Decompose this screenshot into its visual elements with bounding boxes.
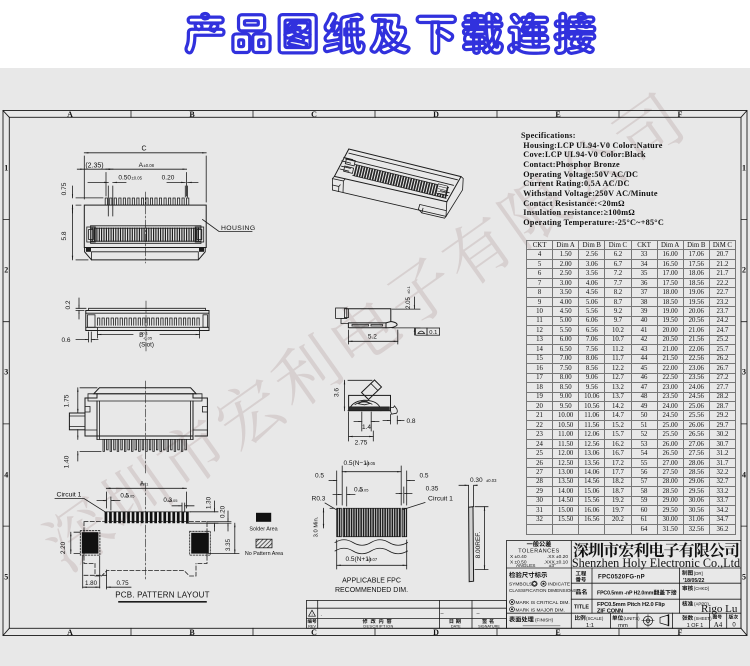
- svg-text:±0.05: ±0.05: [359, 488, 370, 493]
- svg-text:C: C: [311, 628, 317, 637]
- svg-text:A: A: [67, 628, 73, 637]
- svg-text:±0.05: ±0.05: [132, 176, 143, 181]
- svg-text:ZIF CONN: ZIF CONN: [597, 609, 623, 615]
- svg-text:2.05: 2.05: [406, 297, 412, 309]
- svg-text:mm: mm: [618, 623, 628, 629]
- svg-text:0: 0: [732, 623, 736, 629]
- svg-text:1: 1: [4, 164, 8, 173]
- svg-text:E: E: [555, 628, 560, 637]
- svg-text:Circuit 1: Circuit 1: [428, 496, 453, 503]
- svg-text:CLASSIFICATION DIMENSIONS: CLASSIFICATION DIMENSIONS: [509, 588, 577, 593]
- svg-text:(SHEET): (SHEET): [694, 616, 712, 621]
- svg-text:0.2: 0.2: [65, 300, 72, 309]
- svg-text:0.5: 0.5: [419, 473, 428, 480]
- svg-text:SIGNATURE: SIGNATURE: [478, 625, 500, 629]
- svg-text:1.40: 1.40: [64, 455, 71, 468]
- svg-text:0.50: 0.50: [118, 175, 131, 182]
- svg-text:–: –: [476, 611, 480, 617]
- svg-text:1.30: 1.30: [205, 496, 212, 509]
- svg-text:±0.05: ±0.05: [168, 498, 179, 503]
- svg-text:8.00REF.: 8.00REF.: [475, 531, 482, 558]
- svg-text:2: 2: [4, 266, 8, 275]
- svg-text:1.75: 1.75: [64, 394, 71, 407]
- svg-text:ANGLES: ANGLES: [516, 563, 535, 569]
- svg-text:B: B: [189, 628, 195, 637]
- svg-text:1 OF 1: 1 OF 1: [687, 623, 703, 629]
- svg-text:X ±0.40: X ±0.40: [510, 554, 527, 560]
- svg-text:(UNITS): (UNITS): [624, 616, 641, 621]
- svg-text:DATE: DATE: [451, 625, 461, 629]
- svg-text:DESCRIPTION: DESCRIPTION: [363, 625, 393, 629]
- svg-text:SYMBOLS: SYMBOLS: [509, 581, 532, 587]
- svg-text:TOLERANCES: TOLERANCES: [518, 548, 559, 554]
- svg-text:FPC0520FG-nP: FPC0520FG-nP: [598, 575, 645, 581]
- svg-text:(SCALE): (SCALE): [586, 616, 604, 621]
- svg-text:2.75: 2.75: [355, 440, 368, 447]
- svg-text:REV: REV: [308, 624, 316, 628]
- svg-text:0.35: 0.35: [426, 486, 439, 493]
- svg-text:C: C: [311, 110, 317, 119]
- svg-text:Solder Area: Solder Area: [249, 527, 277, 533]
- svg-text:2.20: 2.20: [60, 541, 67, 554]
- svg-text:Shenzhen Holy Electronic Co.,L: Shenzhen Holy Electronic Co.,Ltd: [572, 556, 740, 570]
- svg-text:INDICATE: INDICATE: [548, 581, 570, 587]
- svg-text:0.75: 0.75: [61, 182, 68, 195]
- svg-text:5: 5: [742, 573, 746, 582]
- svg-text:0.20: 0.20: [162, 174, 175, 181]
- svg-text:1: 1: [742, 164, 746, 173]
- svg-text:E: E: [555, 110, 560, 119]
- svg-text:!: !: [311, 612, 312, 617]
- svg-text:±3°: ±3°: [549, 563, 556, 569]
- svg-text:.XXX ±0.10: .XXX ±0.10: [544, 560, 569, 566]
- svg-text:MARK IS CRITICAL DIM.: MARK IS CRITICAL DIM.: [516, 600, 570, 606]
- svg-text:.XX ±0.20: .XX ±0.20: [547, 554, 568, 560]
- svg-text:2: 2: [742, 266, 746, 275]
- svg-text:FPC0.5mm -nP H2.0mm: FPC0.5mm -nP H2.0mm: [597, 591, 654, 597]
- svg-text:0.6: 0.6: [61, 337, 70, 344]
- svg-text:5.2: 5.2: [368, 334, 377, 341]
- svg-text:1.4: 1.4: [362, 424, 371, 431]
- svg-text:±0.07: ±0.07: [367, 557, 378, 562]
- svg-text:±0.03: ±0.03: [486, 478, 497, 483]
- svg-text:RECOMMENDED DIM.: RECOMMENDED DIM.: [335, 587, 408, 594]
- svg-text:A4: A4: [714, 621, 723, 629]
- svg-text:TITLE: TITLE: [574, 605, 589, 611]
- svg-text:(2.35): (2.35): [85, 163, 103, 170]
- svg-text:4: 4: [4, 471, 8, 480]
- svg-text:3.6: 3.6: [334, 388, 341, 397]
- svg-text:APPLICABLE FPC: APPLICABLE FPC: [342, 578, 401, 585]
- svg-text:PCB. PATTERN LAYOUT: PCB. PATTERN LAYOUT: [115, 591, 209, 600]
- svg-text:0.1: 0.1: [429, 330, 437, 336]
- svg-text:-0.05: -0.05: [143, 336, 153, 341]
- svg-text:[CHKD]: [CHKD]: [694, 586, 709, 591]
- svg-text:(Slot): (Slot): [139, 342, 154, 349]
- svg-text:[DR]: [DR]: [694, 571, 703, 576]
- svg-text:3: 3: [4, 368, 8, 377]
- svg-text:3.0 Min.: 3.0 Min.: [314, 516, 320, 537]
- svg-text:No Pattern Area: No Pattern Area: [245, 551, 283, 557]
- svg-text:1:1: 1:1: [586, 623, 594, 629]
- svg-text:0.30: 0.30: [470, 477, 483, 484]
- svg-text:5: 5: [4, 573, 8, 582]
- svg-text:0.75: 0.75: [116, 580, 129, 587]
- svg-text:±0.1: ±0.1: [406, 285, 411, 294]
- svg-text:0.8: 0.8: [406, 418, 415, 425]
- svg-text:–: –: [440, 611, 444, 617]
- svg-text:0.5: 0.5: [315, 473, 324, 480]
- svg-text:FPC0.5mm Pitch H2.0 Flip: FPC0.5mm Pitch H2.0 Flip: [597, 602, 665, 608]
- svg-text:B: B: [189, 110, 195, 119]
- svg-text:MARK IS MAJOR DIM.: MARK IS MAJOR DIM.: [516, 607, 565, 613]
- svg-text:0.20: 0.20: [220, 505, 227, 518]
- svg-text:±0.05: ±0.05: [125, 494, 136, 499]
- svg-text:A: A: [67, 110, 73, 119]
- svg-text:D: D: [433, 110, 439, 119]
- svg-text:.: .: [321, 612, 322, 618]
- svg-text:3.35: 3.35: [225, 538, 232, 551]
- svg-text:R0.3: R0.3: [312, 496, 326, 503]
- svg-text:3: 3: [742, 368, 746, 377]
- svg-text:5.8: 5.8: [61, 231, 68, 240]
- svg-text:4: 4: [742, 471, 746, 480]
- svg-text:±0.08: ±0.08: [144, 163, 155, 168]
- svg-text:(FINISH): (FINISH): [535, 618, 554, 623]
- svg-text:Circuit 1: Circuit 1: [57, 492, 82, 499]
- svg-text:F: F: [678, 110, 683, 119]
- svg-text:Rigo Lu: Rigo Lu: [701, 603, 738, 615]
- svg-text:'18/05/22: '18/05/22: [683, 578, 705, 584]
- svg-text:±0.1: ±0.1: [141, 482, 150, 487]
- svg-text:±0.05: ±0.05: [365, 461, 376, 466]
- svg-text:C: C: [141, 146, 146, 153]
- svg-text:D: D: [433, 628, 439, 637]
- svg-text:F: F: [678, 628, 683, 637]
- svg-text:1.80: 1.80: [85, 580, 98, 587]
- svg-text:HOUSING: HOUSING: [221, 225, 256, 232]
